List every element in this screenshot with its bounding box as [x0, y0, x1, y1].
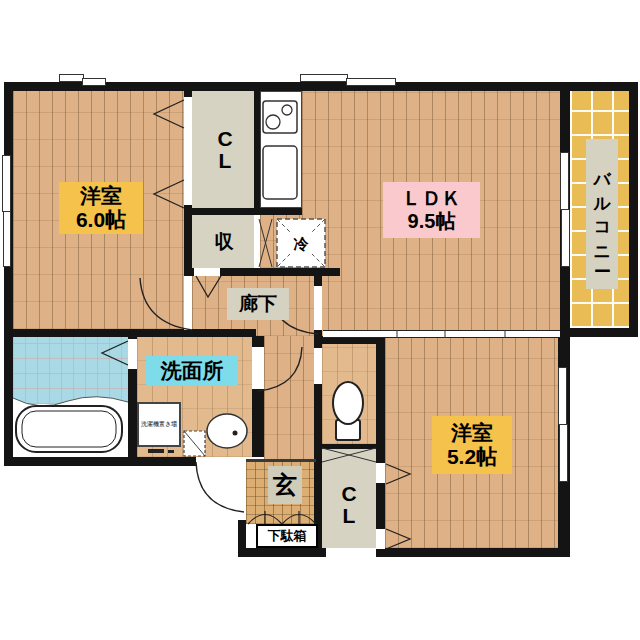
refrigerator-label: 冷	[290, 233, 312, 255]
wall-entrance-left-stub	[238, 520, 246, 557]
bedroom1-top-window-b	[82, 78, 106, 86]
washer-space-label: 洗濯機置き場	[139, 417, 179, 431]
entrance-step-edge	[246, 459, 316, 462]
corridor-floor	[264, 336, 314, 462]
ldk-top-window	[300, 74, 348, 82]
bathtub-icon	[16, 406, 122, 452]
wall-toilet-closet-divider	[322, 444, 376, 449]
storage-label: 収	[210, 229, 238, 255]
shoe-cabinet-label: 下駄箱	[256, 524, 318, 548]
wall-left	[4, 82, 13, 466]
bedroom1-label: 洋室 6.0帖	[59, 182, 143, 234]
bedroom1-left-window-b	[3, 211, 11, 267]
wall-bedroom2-left	[376, 336, 385, 557]
ldk-name: ＬＤＫ	[402, 187, 462, 210]
closet-upper-text: CL	[216, 128, 233, 172]
entrance-label: 玄	[268, 466, 302, 504]
bedroom1-door-gap	[184, 276, 192, 330]
wall-under-closet	[184, 208, 260, 215]
storage-door-gap	[194, 268, 220, 276]
bedroom2-name: 洋室	[451, 421, 493, 445]
bedroom1-size: 6.0帖	[76, 208, 126, 232]
washroom-label: 洗面所	[146, 356, 238, 386]
balcony-sliding-window	[560, 152, 569, 210]
wall-closet-kitchen	[254, 91, 260, 208]
bedroom1-top-window	[59, 74, 84, 82]
bedroom1-left-window	[2, 155, 11, 212]
washroom-door-gap	[252, 347, 264, 389]
wall-balcony-right	[629, 82, 638, 337]
bedroom2-size: 5.2帖	[447, 445, 497, 469]
ldk-label: ＬＤＫ 9.5帖	[383, 182, 480, 238]
wall-bedroom1-bottom	[4, 329, 256, 337]
front-door-arc	[196, 462, 244, 512]
wall-balcony-bottom	[560, 328, 638, 337]
toilet-floor	[322, 344, 376, 444]
bedroom2-label: 洋室 5.2帖	[432, 416, 512, 474]
wall-under-kitchen	[254, 208, 302, 215]
floorplan: 洋室 6.0帖 ＬＤＫ 9.5帖 洋室 5.2帖 洗面所 廊下 バルコニー 玄 …	[0, 0, 640, 640]
kitchen-counter	[260, 91, 302, 208]
wall-bedroom2-bottom	[376, 548, 570, 557]
wall-bottom-left	[4, 457, 196, 466]
ldk-size: 9.5帖	[408, 210, 456, 233]
ldk-bedroom2-slider	[323, 330, 560, 338]
toilet-door-gap	[314, 348, 322, 384]
closet-lower-opening-a	[376, 463, 385, 483]
bath-door-gap	[128, 339, 137, 369]
bedroom2-right-window	[558, 367, 567, 425]
hatch-box	[322, 448, 376, 462]
closet-lower-text: CL	[340, 483, 357, 527]
closet-upper-label: CL	[209, 125, 241, 175]
wall-entrance-bottom	[238, 548, 326, 557]
bedroom1-name: 洋室	[80, 184, 122, 208]
hallway-label: 廊下	[227, 288, 289, 320]
ldk-door-gap	[314, 286, 322, 330]
bedroom2-right-window-b	[559, 424, 568, 482]
closet-upper-opening	[184, 97, 192, 205]
washroom-floor	[137, 336, 252, 457]
balcony-sliding-window-b	[561, 209, 570, 267]
bathroom-floor	[13, 336, 128, 404]
closet-lower-opening-b	[376, 529, 385, 549]
ldk-top-window-b	[346, 78, 396, 86]
balcony-label: バルコニー	[586, 139, 618, 289]
closet-lower-label: CL	[333, 480, 365, 530]
